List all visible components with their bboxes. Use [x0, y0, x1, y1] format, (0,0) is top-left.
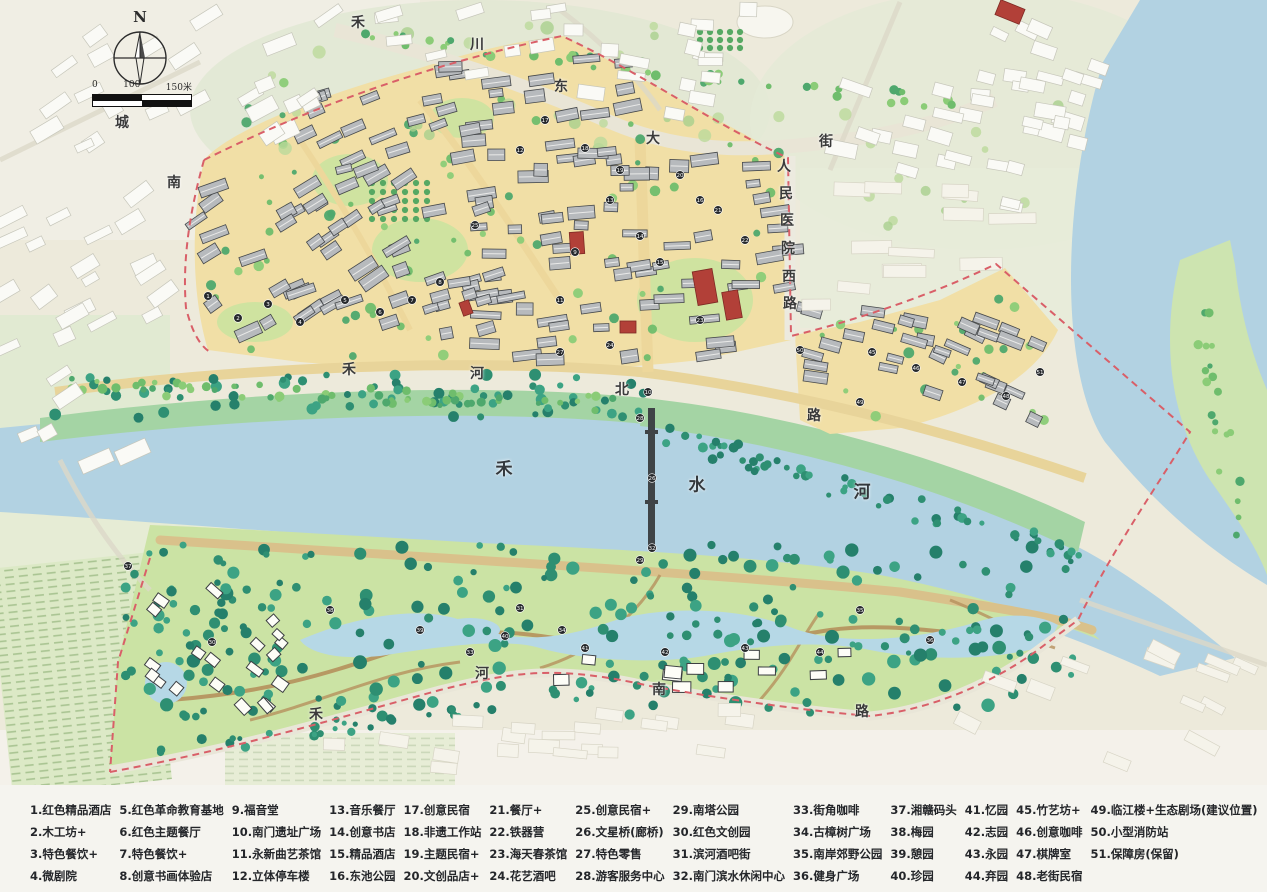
legend-column: 49.临江楼+生态剧场(建议位置)50.小型消防站51.保障房(保留) — [1091, 799, 1258, 887]
poi-marker: 7 — [408, 296, 417, 305]
legend-item: 16.东池公园 — [329, 865, 395, 887]
legend-column: 17.创意民宿18.非遗工作站19.主题民宿+20.文创品店+ — [404, 799, 482, 887]
svg-text:36: 36 — [926, 638, 934, 644]
legend-item: 17.创意民宿 — [404, 799, 482, 821]
poi-marker: 38 — [326, 606, 335, 615]
legend-item: 2.木工坊+ — [30, 821, 111, 843]
legend-column: 41.忆园42.志园43.永园44.弃园 — [965, 799, 1008, 887]
legend-item: 51.保障房(保留) — [1091, 843, 1258, 865]
scale-tick-100: 100 — [123, 80, 140, 93]
legend-item: 48.老街民宿 — [1016, 865, 1082, 887]
legend-item: 49.临江楼+生态剧场(建议位置) — [1091, 799, 1258, 821]
legend-item: 25.创意民宿+ — [575, 799, 664, 821]
legend-item: 28.游客服务中心 — [575, 865, 664, 887]
svg-text:38: 38 — [326, 608, 334, 614]
legend-column: 33.街角咖啡34.古樟树广场35.南岸郊野公园36.健身广场 — [793, 799, 882, 887]
poi-marker: 47 — [958, 378, 967, 387]
legend-column: 5.红色革命教育基地6.红色主题餐厅7.特色餐饮+8.创意书画体验店 — [119, 799, 223, 887]
svg-text:12: 12 — [516, 148, 523, 154]
poi-marker: 37 — [124, 562, 133, 571]
legend-item: 44.弃园 — [965, 865, 1008, 887]
svg-text:5: 5 — [343, 298, 347, 304]
poi-marker: 23 — [696, 316, 705, 325]
legend-item: 22.铁器营 — [489, 821, 567, 843]
scale-tick-end: 150米 — [166, 80, 192, 93]
legend-item: 23.海天春茶馆 — [489, 843, 567, 865]
legend-item: 20.文创品店+ — [404, 865, 482, 887]
legend-item: 45.竹艺坊+ — [1016, 799, 1082, 821]
svg-text:44: 44 — [816, 650, 824, 656]
svg-text:31: 31 — [516, 606, 524, 612]
legend-item: 13.音乐餐厅 — [329, 799, 395, 821]
svg-text:14: 14 — [636, 234, 644, 240]
svg-text:8: 8 — [438, 280, 442, 286]
svg-text:47: 47 — [958, 380, 966, 386]
legend-item: 27.特色零售 — [575, 843, 664, 865]
poi-marker: 51 — [1036, 368, 1045, 377]
svg-text:4: 4 — [298, 320, 302, 326]
svg-text:39: 39 — [416, 628, 424, 634]
poi-marker: 25 — [471, 221, 480, 230]
poi-marker: 42 — [661, 648, 670, 657]
poi-marker: 41 — [581, 644, 590, 653]
legend-item: 9.福音堂 — [232, 799, 321, 821]
poi-marker: 43 — [741, 644, 750, 653]
legend-column: 9.福音堂10.南门遗址广场11.永新曲艺茶馆12.立体停车楼 — [232, 799, 321, 887]
svg-text:50: 50 — [796, 348, 804, 354]
poi-marker: 3 — [264, 300, 273, 309]
svg-text:43: 43 — [741, 646, 749, 652]
poi-marker: 11 — [556, 296, 565, 305]
svg-text:35: 35 — [856, 608, 864, 614]
svg-text:46: 46 — [912, 366, 920, 372]
poi-marker: 29 — [636, 556, 645, 565]
svg-text:45: 45 — [868, 350, 876, 356]
poi-marker: 9 — [571, 248, 580, 257]
north-arrow: N — [108, 8, 172, 90]
svg-text:7: 7 — [410, 298, 414, 304]
legend-item: 36.健身广场 — [793, 865, 882, 887]
svg-text:19: 19 — [616, 168, 624, 174]
legend-item: 39.憩园 — [890, 843, 956, 865]
legend-item: 11.永新曲艺茶馆 — [232, 843, 321, 865]
poi-marker: 28 — [636, 414, 645, 423]
legend-item: 8.创意书画体验店 — [119, 865, 223, 887]
map-area: 1234567891011121314151617181920212223242… — [0, 0, 1267, 785]
legend-item: 37.湘赣码头 — [890, 799, 956, 821]
master-plan-canvas: 1234567891011121314151617181920212223242… — [0, 0, 1267, 892]
svg-text:51: 51 — [1036, 370, 1044, 376]
poi-marker: 27 — [556, 348, 565, 357]
legend-item: 43.永园 — [965, 843, 1008, 865]
poi-marker: 31 — [516, 604, 525, 613]
svg-text:13: 13 — [606, 198, 614, 204]
svg-text:49: 49 — [856, 400, 864, 406]
svg-text:2: 2 — [236, 316, 240, 322]
poi-marker: 22 — [741, 236, 750, 245]
svg-text:1: 1 — [206, 294, 210, 300]
svg-text:9: 9 — [573, 250, 577, 256]
poi-marker: 34 — [558, 626, 567, 635]
poi-marker: 24 — [606, 341, 615, 350]
legend-item: 26.文星桥(廊桥) — [575, 821, 664, 843]
svg-text:26: 26 — [648, 476, 656, 482]
legend-item: 35.南岸郊野公园 — [793, 843, 882, 865]
legend-item: 42.志园 — [965, 821, 1008, 843]
svg-text:27: 27 — [556, 350, 564, 356]
svg-text:41: 41 — [581, 646, 589, 652]
svg-text:37: 37 — [124, 564, 132, 570]
legend-item: 14.创意书店 — [329, 821, 395, 843]
legend-item: 32.南门滨水休闲中心 — [673, 865, 785, 887]
poi-marker: 5 — [341, 296, 350, 305]
poi-marker: 2 — [234, 314, 243, 323]
svg-text:16: 16 — [696, 198, 704, 204]
map-svg: 1234567891011121314151617181920212223242… — [0, 0, 1267, 785]
poi-marker: 46 — [912, 364, 921, 373]
svg-text:3: 3 — [266, 302, 270, 308]
north-label: N — [108, 8, 172, 26]
poi-marker: 16 — [696, 196, 705, 205]
legend-column: 25.创意民宿+26.文星桥(廊桥)27.特色零售28.游客服务中心 — [575, 799, 664, 887]
poi-marker: 30 — [208, 638, 217, 647]
poi-marker: 48 — [1002, 392, 1011, 401]
legend-item: 6.红色主题餐厅 — [119, 821, 223, 843]
poi-marker: 18 — [581, 144, 590, 153]
poi-marker: 35 — [856, 606, 865, 615]
legend-item: 18.非遗工作站 — [404, 821, 482, 843]
svg-text:32: 32 — [648, 546, 655, 552]
svg-text:25: 25 — [471, 223, 479, 229]
svg-text:21: 21 — [714, 208, 722, 214]
poi-marker: 10 — [644, 388, 653, 397]
legend-item: 38.梅园 — [890, 821, 956, 843]
legend-column: 45.竹艺坊+46.创意咖啡47.棋牌室48.老街民宿 — [1016, 799, 1082, 887]
legend-item: 50.小型消防站 — [1091, 821, 1258, 843]
legend-item: 41.忆园 — [965, 799, 1008, 821]
legend-column: 21.餐厅+22.铁器营23.海天春茶馆24.花艺酒吧 — [489, 799, 567, 887]
svg-text:24: 24 — [606, 343, 614, 349]
svg-text:33: 33 — [466, 650, 474, 656]
svg-text:6: 6 — [378, 310, 382, 316]
legend-item: 33.街角咖啡 — [793, 799, 882, 821]
svg-text:42: 42 — [661, 650, 668, 656]
legend-item: 19.主题民宿+ — [404, 843, 482, 865]
legend-item: 29.南塔公园 — [673, 799, 785, 821]
legend-item: 1.红色精品酒店 — [30, 799, 111, 821]
legend-item: 4.微剧院 — [30, 865, 111, 887]
legend-item: 5.红色革命教育基地 — [119, 799, 223, 821]
poi-marker: 14 — [636, 232, 645, 241]
legend-column: 29.南塔公园30.红色文创园31.滨河酒吧街32.南门滨水休闲中心 — [673, 799, 785, 887]
legend-column: 13.音乐餐厅14.创意书店15.精品酒店16.东池公园 — [329, 799, 395, 887]
svg-text:23: 23 — [696, 318, 704, 324]
poi-marker: 39 — [416, 626, 425, 635]
poi-marker: 32 — [648, 544, 657, 553]
svg-text:29: 29 — [636, 558, 644, 564]
legend-item: 21.餐厅+ — [489, 799, 567, 821]
legend-item: 7.特色餐饮+ — [119, 843, 223, 865]
poi-marker: 8 — [436, 278, 445, 287]
svg-text:22: 22 — [741, 238, 748, 244]
svg-text:11: 11 — [556, 298, 564, 304]
poi-marker: 6 — [376, 308, 385, 317]
svg-text:10: 10 — [644, 390, 652, 396]
svg-text:28: 28 — [636, 416, 644, 422]
legend-item: 31.滨河酒吧街 — [673, 843, 785, 865]
legend: 1.红色精品酒店2.木工坊+3.特色餐饮+4.微剧院5.红色革命教育基地6.红色… — [0, 785, 1267, 892]
svg-text:15: 15 — [656, 260, 664, 266]
svg-text:34: 34 — [558, 628, 566, 634]
poi-marker: 21 — [714, 206, 723, 215]
poi-marker: 4 — [296, 318, 305, 327]
svg-text:48: 48 — [1002, 394, 1010, 400]
poi-marker: 44 — [816, 648, 825, 657]
legend-item: 30.红色文创园 — [673, 821, 785, 843]
legend-column: 37.湘赣码头38.梅园39.憩园40.珍园 — [890, 799, 956, 887]
poi-marker: 13 — [606, 196, 615, 205]
legend-item: 40.珍园 — [890, 865, 956, 887]
scale-bar: 0 100 150米 — [92, 80, 192, 107]
poi-marker: 19 — [616, 166, 625, 175]
legend-item: 15.精品酒店 — [329, 843, 395, 865]
poi-marker: 49 — [856, 398, 865, 407]
svg-text:30: 30 — [208, 640, 216, 646]
legend-item: 12.立体停车楼 — [232, 865, 321, 887]
legend-item: 24.花艺酒吧 — [489, 865, 567, 887]
poi-marker: 12 — [516, 146, 525, 155]
poi-marker: 15 — [656, 258, 665, 267]
poi-marker: 45 — [868, 348, 877, 357]
svg-text:40: 40 — [501, 634, 509, 640]
legend-item: 47.棋牌室 — [1016, 843, 1082, 865]
legend-column: 1.红色精品酒店2.木工坊+3.特色餐饮+4.微剧院 — [30, 799, 111, 887]
poi-marker: 20 — [676, 171, 685, 180]
poi-marker: 36 — [926, 636, 935, 645]
poi-marker: 33 — [466, 648, 475, 657]
svg-text:17: 17 — [541, 118, 549, 124]
legend-columns: 1.红色精品酒店2.木工坊+3.特色餐饮+4.微剧院5.红色革命教育基地6.红色… — [30, 799, 1241, 887]
poi-marker: 50 — [796, 346, 805, 355]
legend-item: 3.特色餐饮+ — [30, 843, 111, 865]
poi-marker: 26 — [648, 474, 657, 483]
poi-marker: 1 — [204, 292, 213, 301]
svg-text:18: 18 — [581, 146, 589, 152]
poi-marker: 40 — [501, 632, 510, 641]
svg-text:20: 20 — [676, 173, 684, 179]
legend-item: 34.古樟树广场 — [793, 821, 882, 843]
scale-tick-0: 0 — [92, 80, 98, 93]
poi-marker: 17 — [541, 116, 550, 125]
legend-item: 10.南门遗址广场 — [232, 821, 321, 843]
legend-item: 46.创意咖啡 — [1016, 821, 1082, 843]
